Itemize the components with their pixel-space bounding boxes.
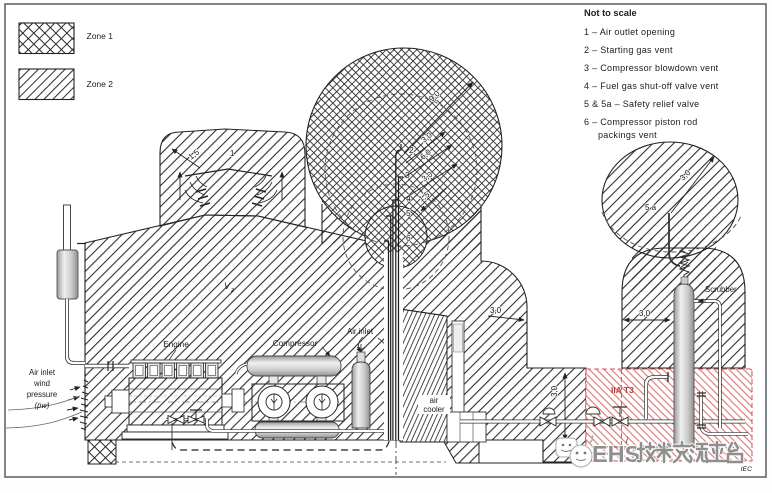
svg-text:packings vent: packings vent (598, 130, 657, 140)
svg-text:Not to scale: Not to scale (584, 8, 637, 18)
svg-text:air: air (430, 396, 439, 405)
svg-text:Scrubber: Scrubber (705, 285, 737, 294)
svg-text:Zone 1: Zone 1 (87, 31, 114, 41)
svg-text:Air inlet: Air inlet (29, 368, 56, 377)
svg-text:EHS: EHS (592, 441, 640, 467)
svg-text:1 – Air outlet opening: 1 – Air outlet opening (584, 27, 675, 37)
svg-text:IIA T3: IIA T3 (611, 385, 634, 395)
svg-text:3,0: 3,0 (550, 385, 559, 397)
svg-text:Compressor: Compressor (273, 339, 318, 348)
svg-text:cooler: cooler (423, 405, 445, 414)
svg-text:(p𝑤): (p𝑤) (35, 401, 50, 410)
svg-text:pressure: pressure (27, 390, 57, 399)
svg-text:V: V (224, 281, 231, 291)
svg-text:4 – Fuel gas shut-off valve: 4 – Fuel gas shut-off valve vent (584, 81, 719, 91)
svg-text:5 a: 5 a (645, 203, 657, 212)
svg-text:5 & 5a – Safety relief valve: 5 & 5a – Safety relief valve (584, 99, 699, 109)
svg-text:6 – Compressor piston rod: 6 – Compressor piston rod (584, 117, 698, 127)
svg-text:6: 6 (406, 233, 411, 243)
svg-text:2 – Starting gas vent: 2 – Starting gas vent (584, 45, 673, 55)
svg-text:3,0: 3,0 (490, 306, 502, 315)
svg-text:1: 1 (230, 149, 234, 158)
svg-text:3 – Compressor blowdown vent: 3 – Compressor blowdown vent (584, 63, 719, 73)
svg-text:3,0: 3,0 (639, 309, 651, 318)
svg-text:Engine: Engine (163, 340, 189, 349)
svg-text:Air inlet: Air inlet (347, 327, 374, 336)
svg-text:Zone 2: Zone 2 (87, 79, 114, 89)
svg-text:IEC: IEC (741, 466, 752, 473)
svg-text:5: 5 (406, 208, 411, 218)
svg-text:wind: wind (33, 379, 50, 388)
